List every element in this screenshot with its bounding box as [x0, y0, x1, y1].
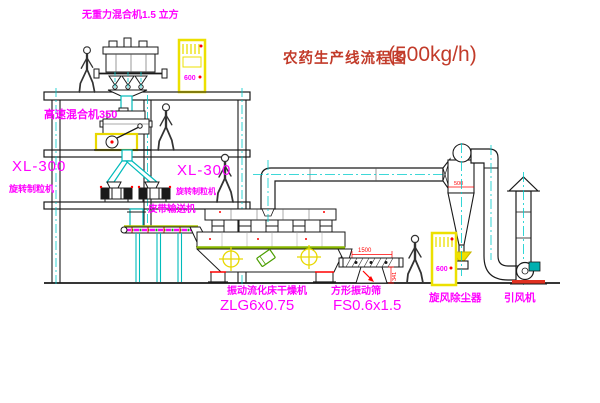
diagram-title-capacity: (500kg/h) — [388, 44, 477, 65]
label-granulator-left-model: XL-300 — [12, 159, 66, 174]
indicator-dot — [200, 45, 203, 48]
label-sieve-model: FS0.6x1.5 — [333, 298, 401, 313]
indicator-dot — [199, 76, 202, 79]
discharge-chute — [127, 209, 146, 227]
label-dryer-name: 振动流化床干燥机 — [227, 287, 307, 297]
flow-diagram-canvas: 600 — [0, 0, 600, 403]
belt-conveyor — [121, 226, 201, 282]
person-icon — [79, 47, 94, 92]
control-cabinet-ground: 600 — [432, 233, 456, 285]
fan-motor — [529, 262, 540, 271]
gravityless-mixer — [94, 38, 167, 96]
label-granulator-right-model: XL-300 — [177, 163, 231, 178]
label-belt-conveyor: 皮带输送机 — [148, 205, 196, 215]
control-cabinet-top: 600 — [177, 40, 207, 92]
label-granulator-left-name: 旋转制粒机 — [9, 185, 54, 194]
person-icon — [158, 104, 174, 150]
sieve-length-dimension: 1500 — [358, 248, 372, 254]
pipe-to-fan — [471, 145, 516, 280]
cabinet-text: 600 — [436, 266, 448, 273]
label-gravityless-mixer: 无重力混合机1.5 立方 — [82, 11, 179, 21]
cabinet-text: 600 — [184, 75, 196, 82]
label-sieve-name: 方形振动筛 — [331, 287, 381, 297]
conveyor-legs — [136, 233, 182, 282]
fluid-bed-dryer — [197, 209, 352, 282]
label-high-speed-mixer: 高速混合机350 — [44, 110, 117, 121]
indicator-dot — [450, 267, 453, 270]
granulator-right — [138, 182, 171, 202]
label-granulator-right-name: 旋转制粒机 — [176, 188, 216, 196]
label-dryer-model: ZLG6x0.75 — [220, 298, 294, 313]
person-icon — [407, 235, 423, 283]
fan-base — [512, 280, 545, 284]
dryer-stubs — [212, 220, 332, 232]
label-cyclone: 旋风除尘器 — [429, 293, 482, 304]
granulator-left — [100, 182, 133, 202]
sieve-height-dimension: 341 — [392, 272, 398, 281]
indicator-dot — [451, 238, 454, 241]
label-fan: 引风机 — [504, 293, 536, 304]
